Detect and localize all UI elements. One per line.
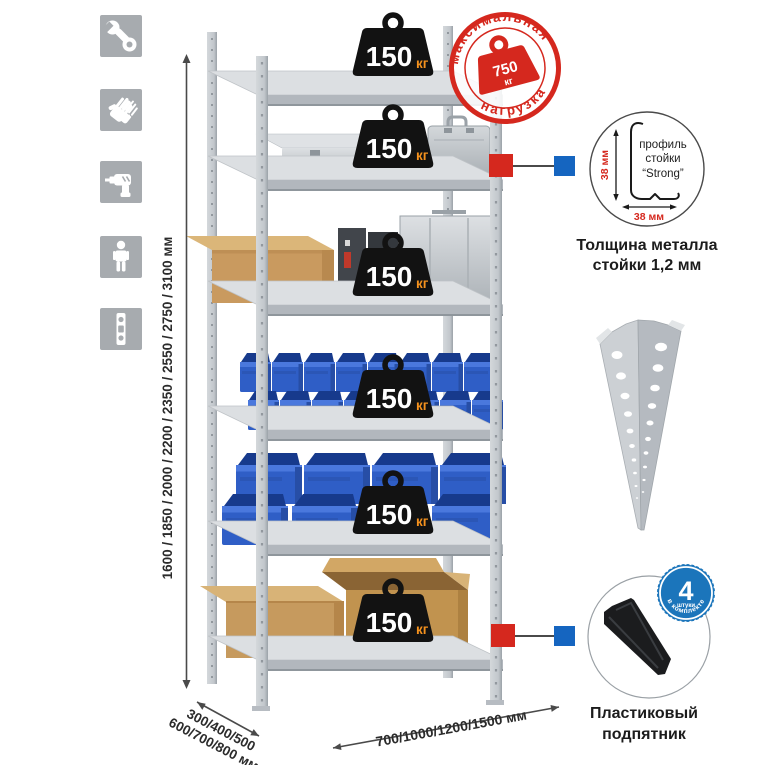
person-icon — [100, 236, 142, 278]
angle-post-image — [596, 320, 685, 530]
profile-label-line2: стойки — [645, 153, 680, 165]
foot-callout-connector — [491, 624, 575, 647]
foot-caption-line1: Пластиковый — [590, 705, 698, 722]
profile-caption-line2: стойки 1,2 мм — [593, 257, 702, 274]
height-dimension-label: 1600 / 1850 / 2000 / 2200 / 2350 / 2550 … — [160, 237, 175, 580]
weight-unit: кг — [416, 56, 429, 71]
profile-detail-circle: 38 мм 38 мм профиль стойки “Strong” — [590, 112, 704, 226]
gloves-icon — [100, 89, 142, 131]
drill-icon — [100, 161, 142, 203]
height-dimension: 1600 / 1850 / 2000 / 2200 / 2350 / 2550 … — [160, 54, 191, 689]
width-dimension-label: 700/1000/1200/1500 мм — [374, 707, 527, 750]
level-icon — [100, 308, 142, 350]
svg-text:150: 150 — [366, 133, 413, 164]
svg-text:150: 150 — [366, 607, 413, 638]
svg-text:кг: кг — [416, 276, 429, 291]
svg-text:кг: кг — [416, 398, 429, 413]
rack — [186, 26, 506, 711]
blue-marker — [554, 626, 575, 646]
profile-callout-connector — [489, 154, 575, 177]
svg-text:кг: кг — [416, 622, 429, 637]
svg-text:150: 150 — [366, 383, 413, 414]
shelf-weight: 150 кг — [353, 15, 434, 76]
profile-horizontal-dim: 38 мм — [634, 211, 664, 223]
profile-label-line1: профиль — [639, 139, 687, 151]
foot-caption-line2: подпятник — [602, 726, 687, 743]
svg-text:кг: кг — [416, 514, 429, 529]
svg-text:150: 150 — [366, 499, 413, 530]
width-dimension: 700/1000/1200/1500 мм — [333, 705, 559, 750]
red-marker — [491, 624, 515, 647]
svg-text:кг: кг — [416, 148, 429, 163]
wrench-icon — [100, 15, 142, 57]
quantity-badge: 4 штуки в комплекте — [657, 564, 715, 622]
product-infographic: 150 кг 150 кг 150 кг 150 кг 150 кг 150 к… — [0, 0, 765, 765]
profile-vertical-dim: 38 мм — [599, 150, 611, 180]
red-marker — [489, 154, 513, 177]
blue-marker — [554, 156, 575, 176]
weight-value: 150 — [366, 41, 413, 72]
max-load-stamp: максимальная нагрузка 750 кг — [436, 0, 573, 134]
badge-value: 4 — [678, 576, 693, 606]
profile-label-line3: “Strong” — [642, 168, 684, 180]
shelf-weight: 150 кг — [353, 107, 434, 168]
svg-text:150: 150 — [366, 261, 413, 292]
profile-caption-line1: Толщина металла — [576, 237, 717, 254]
